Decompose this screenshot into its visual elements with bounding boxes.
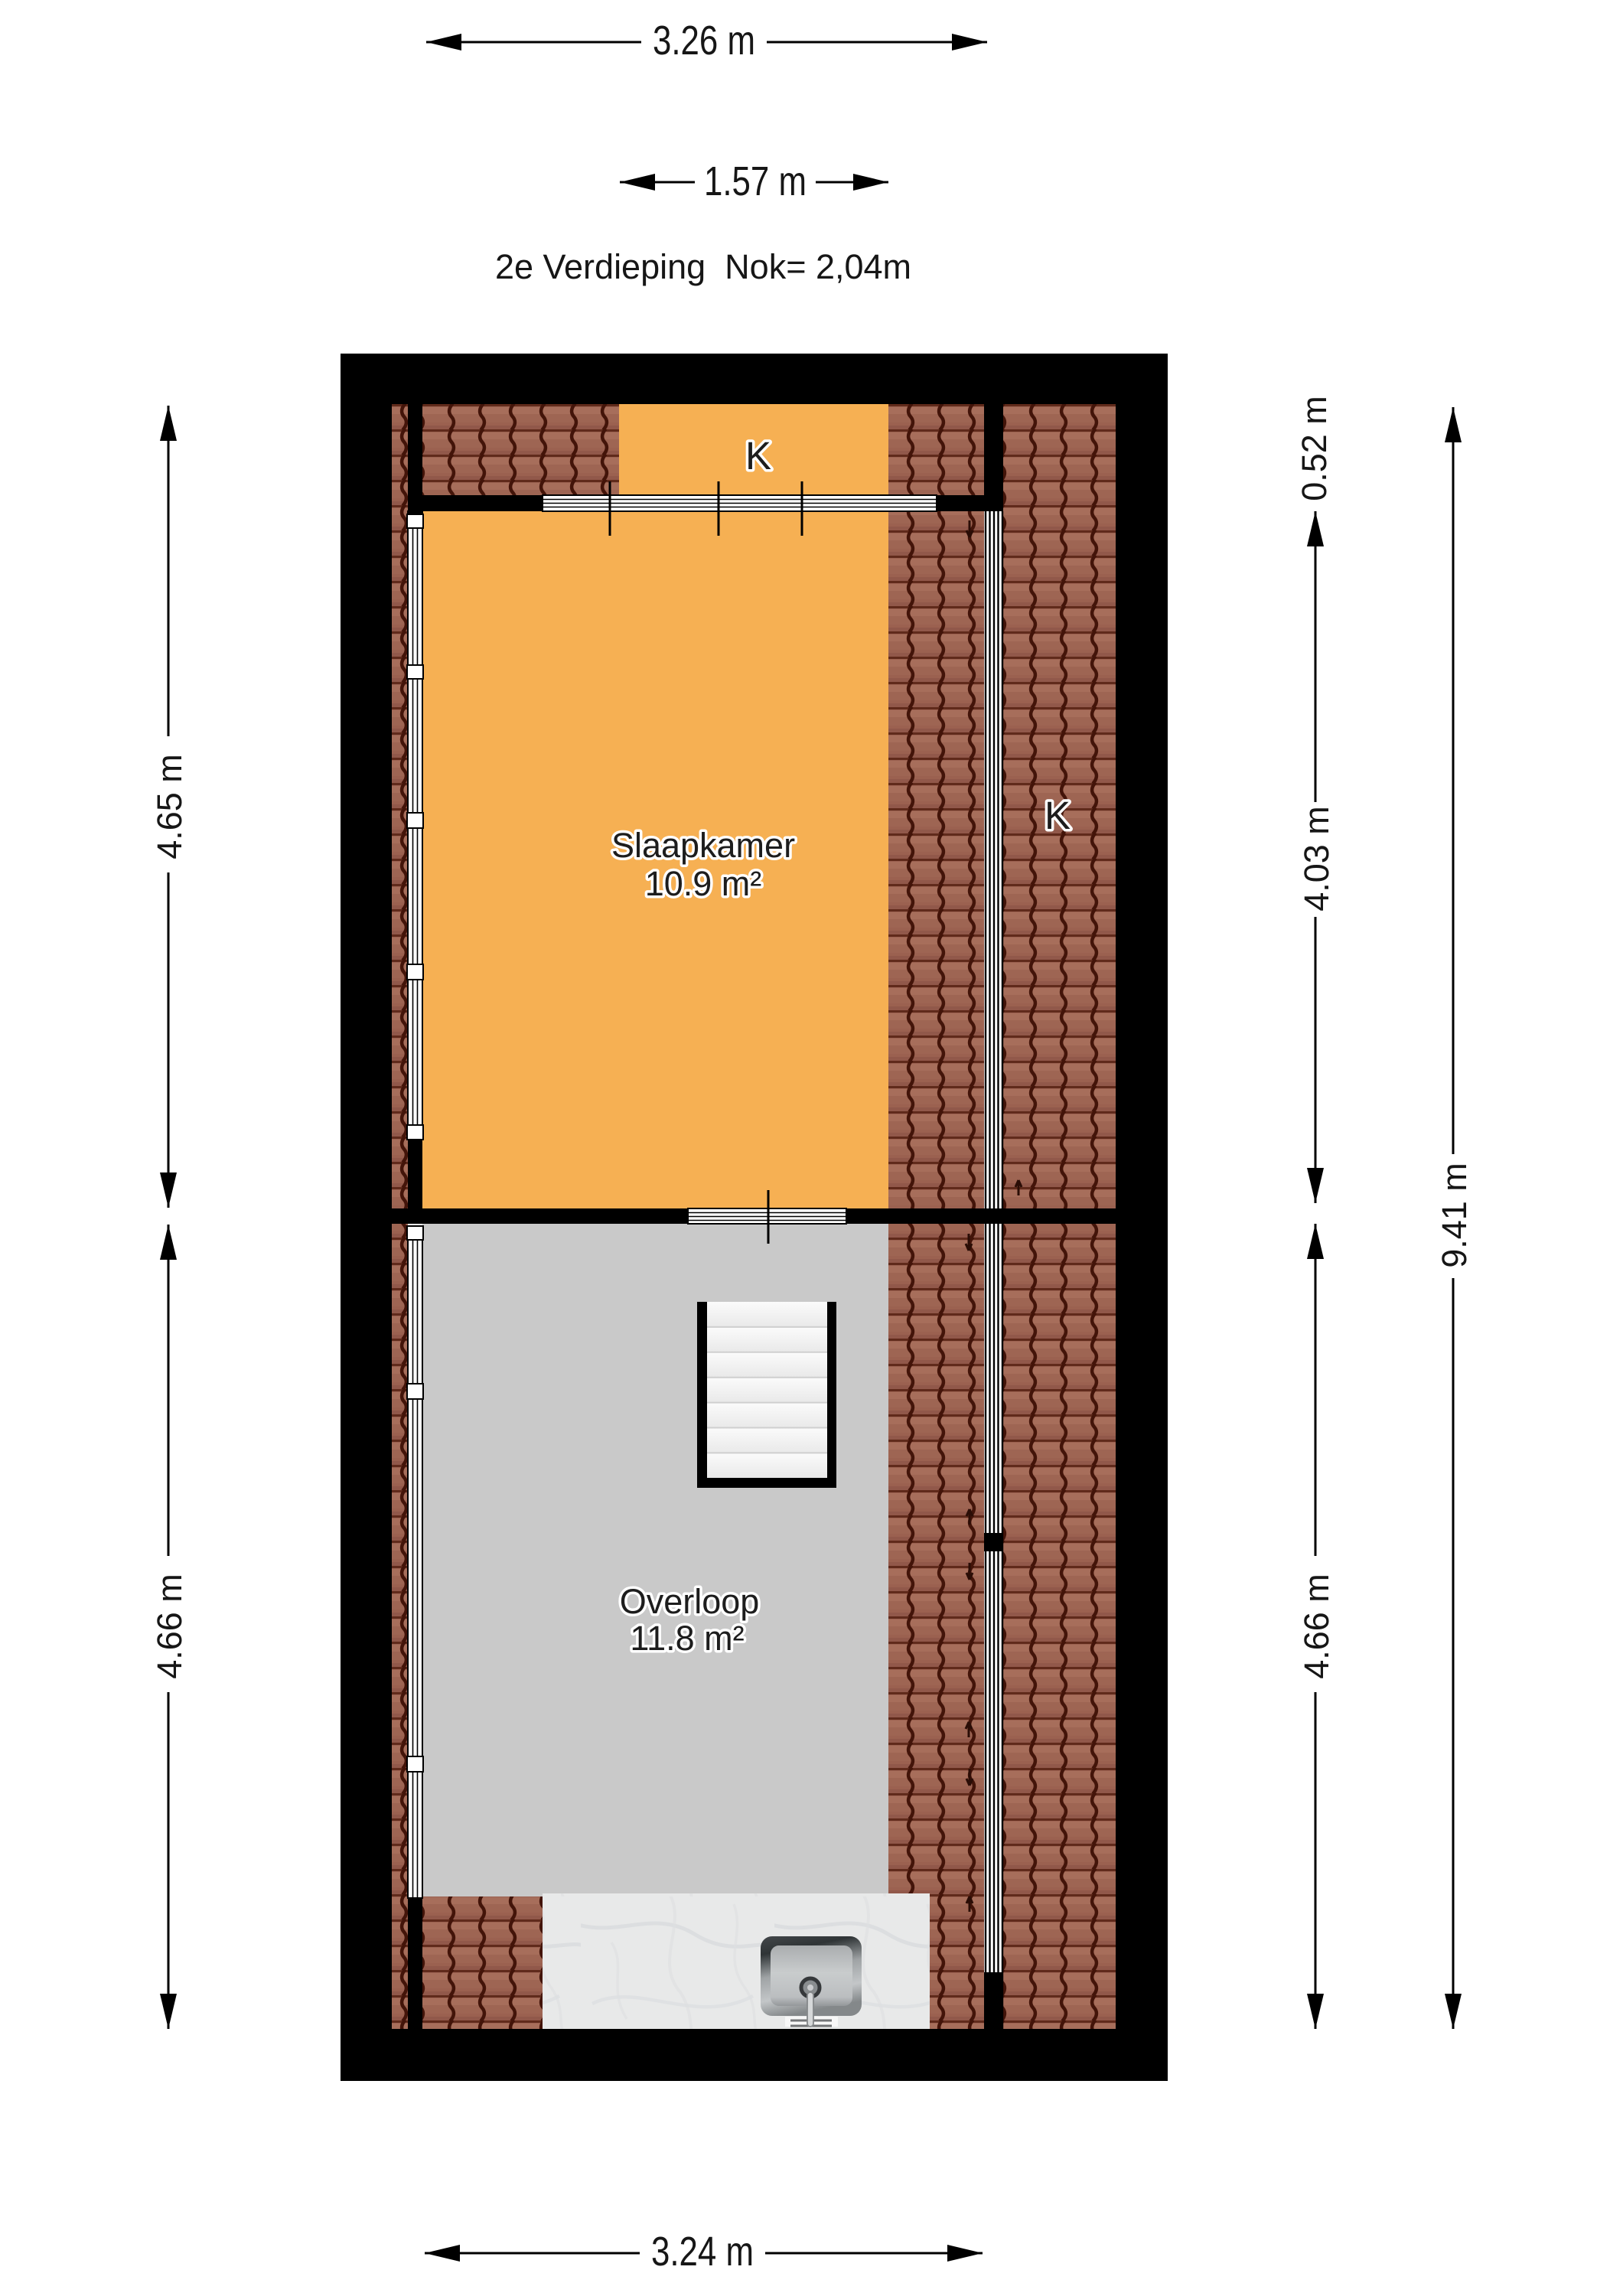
svg-text:9.41 m: 9.41 m	[1435, 1163, 1474, 1268]
svg-text:4.65 m: 4.65 m	[150, 754, 189, 859]
svg-text:4.66 m: 4.66 m	[150, 1574, 189, 1679]
svg-text:11.8 m²: 11.8 m²	[630, 1619, 744, 1658]
svg-text:K: K	[1045, 794, 1071, 837]
svg-text:10.9 m²: 10.9 m²	[645, 864, 762, 903]
svg-text:3.26 m: 3.26 m	[653, 18, 755, 64]
svg-text:1.57 m: 1.57 m	[704, 158, 807, 204]
svg-text:4.03 m: 4.03 m	[1297, 806, 1336, 912]
svg-text:2e Verdieping Nok= 2,04m: 2e Verdieping Nok= 2,04m	[495, 247, 911, 286]
svg-text:Slaapkamer: Slaapkamer	[611, 826, 795, 865]
svg-text:3.24 m: 3.24 m	[651, 2229, 754, 2275]
svg-text:4.66 m: 4.66 m	[1297, 1574, 1336, 1679]
svg-text:Overloop: Overloop	[620, 1582, 760, 1621]
svg-text:K: K	[745, 434, 771, 478]
svg-text:0.52 m: 0.52 m	[1295, 396, 1334, 501]
